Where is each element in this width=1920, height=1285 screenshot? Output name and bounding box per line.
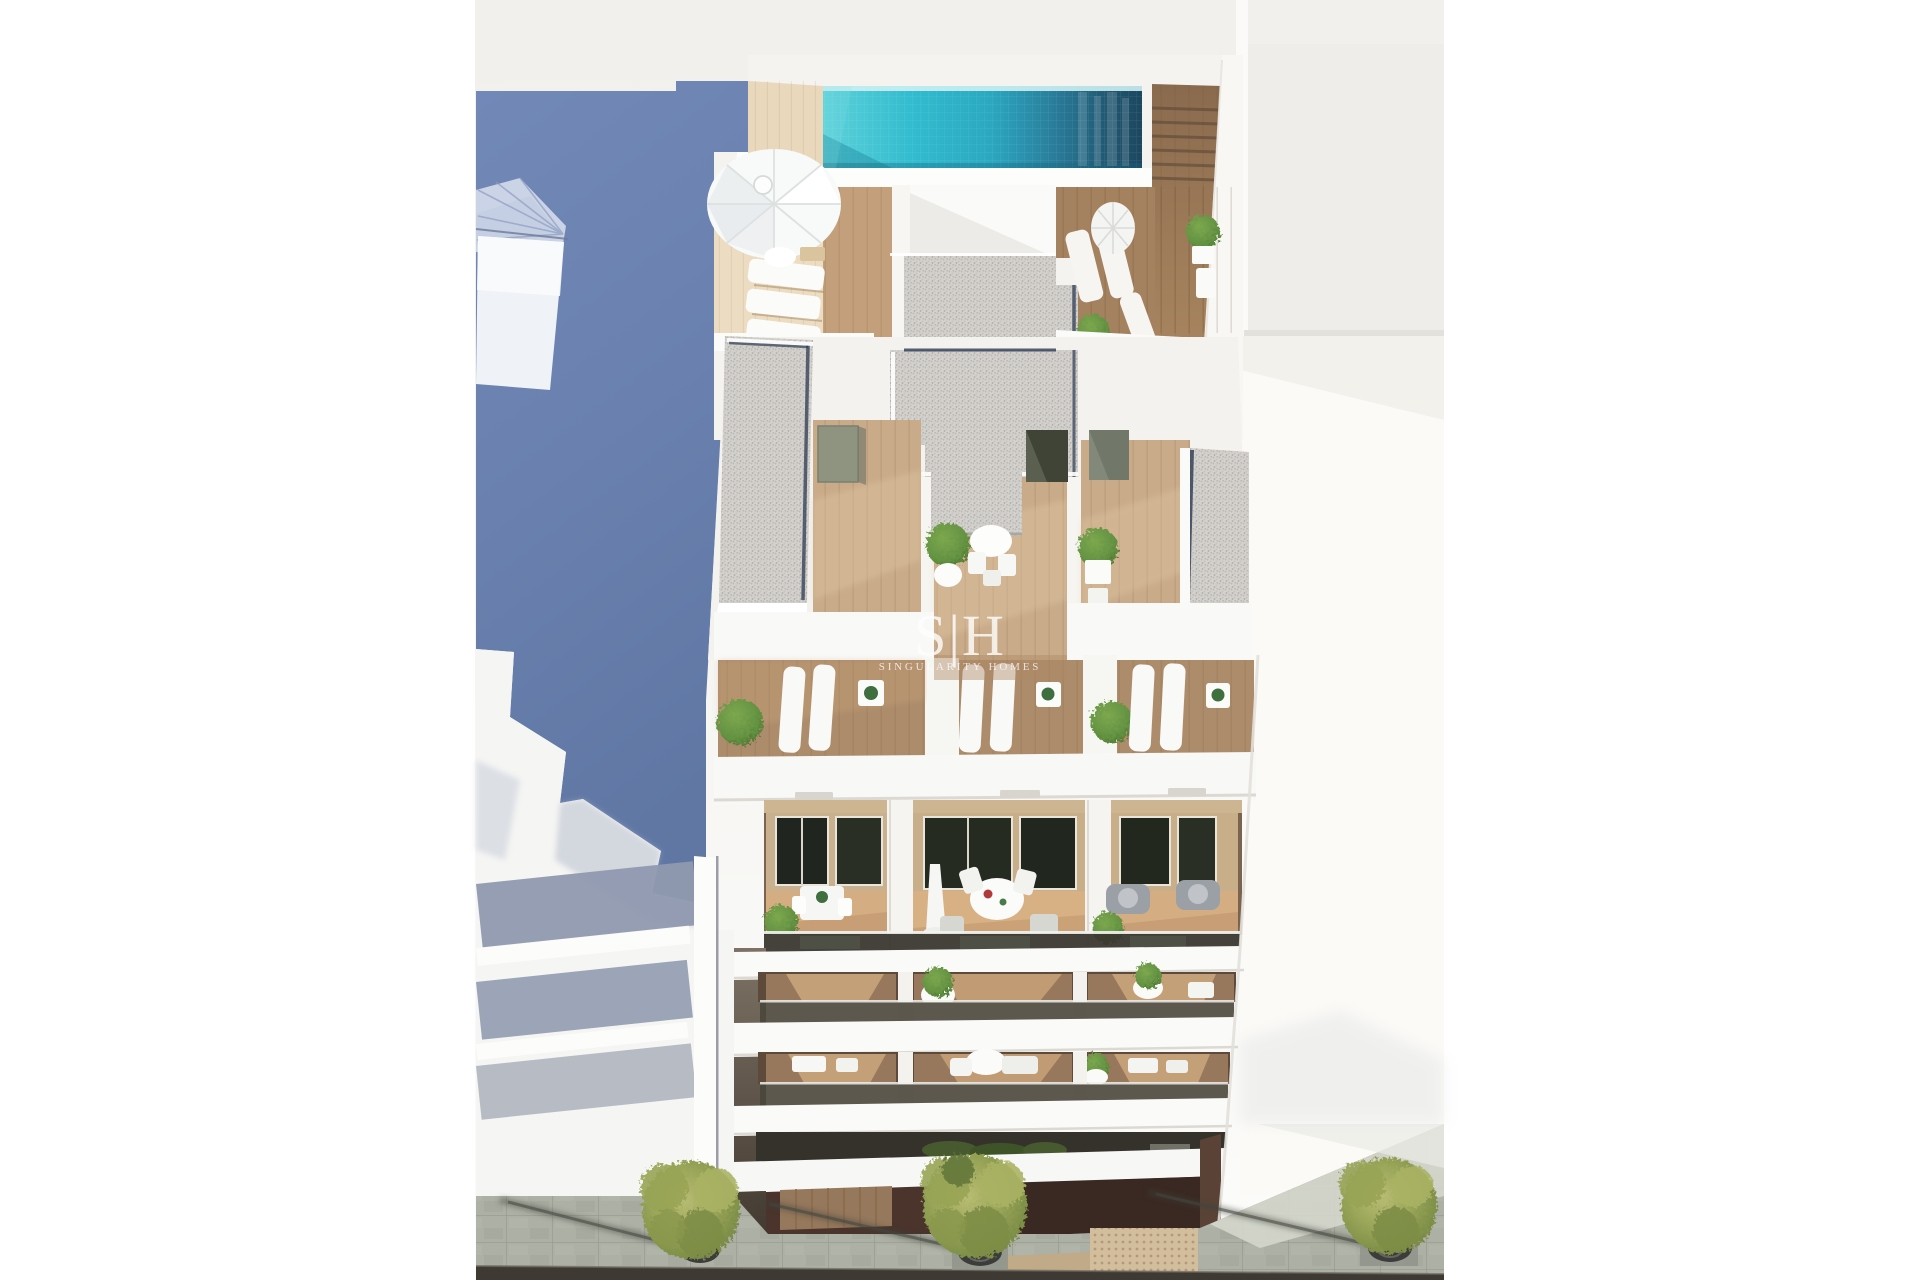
svg-text:SINGULARITY HOMES: SINGULARITY HOMES bbox=[879, 661, 1041, 673]
svg-text:S|H: S|H bbox=[914, 603, 1006, 668]
